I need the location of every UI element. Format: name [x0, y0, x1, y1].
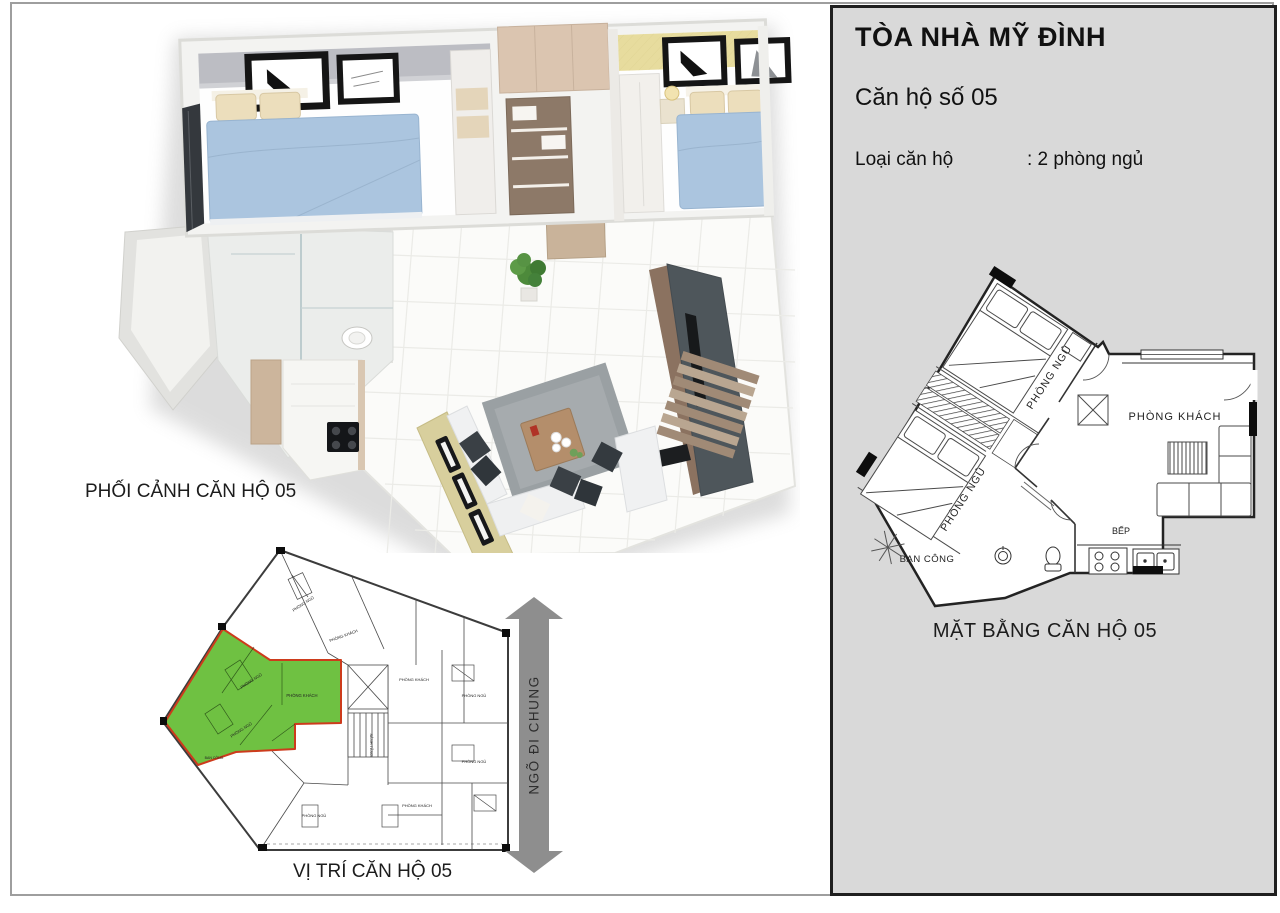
- alley-arrow-bar: NGÕ ĐI CHUNG: [519, 619, 549, 851]
- unit-floor-plan: PHÒNG KHÁCH BẾP BAN CÔNG PHÒNG NGỦ PHÒNG…: [845, 262, 1275, 642]
- siteplan-caption: VỊ TRÍ CĂN HỘ 05: [293, 861, 452, 883]
- floor-location-plan: PHÒNG NGỦ PHÒNG KHÁCH PHÒNG KHÁCH PHÒNG …: [152, 545, 517, 880]
- tv-cabinet-plan: [1168, 442, 1207, 474]
- svg-text:BAN CÔNG: BAN CÔNG: [205, 755, 224, 760]
- building-title: TÒA NHÀ MỸ ĐÌNH: [855, 22, 1274, 53]
- stove-plan: [1089, 548, 1127, 574]
- svg-text:PHÒNG KHÁCH: PHÒNG KHÁCH: [399, 677, 429, 682]
- svg-text:PHÒNG NGỦ: PHÒNG NGỦ: [302, 813, 327, 818]
- svg-text:PHÒNG KHÁCH: PHÒNG KHÁCH: [402, 803, 432, 808]
- svg-text:SẢNH TẦNG: SẢNH TẦNG: [369, 733, 374, 756]
- bed-3d: [677, 112, 770, 209]
- bedroom1-3d: [180, 43, 496, 232]
- arrow-down-icon: [505, 851, 563, 873]
- label-living: PHÒNG KHÁCH: [1129, 410, 1222, 423]
- label-kitchen: BẾP: [1112, 526, 1130, 536]
- arrow-up-icon: [505, 597, 563, 619]
- render-caption: PHỐI CẢNH CĂN HỘ 05: [85, 481, 296, 503]
- bedroom2-3d: [618, 25, 797, 221]
- bedroom-block-3d: [180, 17, 797, 236]
- svg-text:PHÒNG KHÁCH: PHÒNG KHÁCH: [286, 693, 317, 698]
- lamp-3d: [665, 86, 679, 100]
- side-cabinet-3d: [546, 221, 605, 259]
- bed-3d: [207, 114, 422, 223]
- svg-text:PHÒNG NGỦ: PHÒNG NGỦ: [462, 693, 487, 698]
- unit-subtitle: Căn hộ số 05: [855, 84, 1274, 112]
- shaft-plan: [1078, 395, 1108, 425]
- label-balcony: BAN CÔNG: [900, 554, 955, 565]
- unit-type-label: Loại căn hộ: [855, 149, 1027, 171]
- door-opening: [1251, 370, 1258, 400]
- apartment-3d-render: [55, 8, 800, 553]
- unit-type-value: : 2 phòng ngủ: [1027, 149, 1143, 170]
- alley-arrow-label: NGÕ ĐI CHUNG: [527, 675, 542, 794]
- toilet-plan: [1046, 547, 1060, 565]
- plan-caption: MẶT BẰNG CĂN HỘ 05: [880, 620, 1210, 643]
- alley-arrow: NGÕ ĐI CHUNG: [505, 597, 563, 873]
- svg-text:PHÒNG NGỦ: PHÒNG NGỦ: [462, 759, 487, 764]
- unit-type-row: Loại căn hộ: 2 phòng ngủ: [855, 149, 1274, 171]
